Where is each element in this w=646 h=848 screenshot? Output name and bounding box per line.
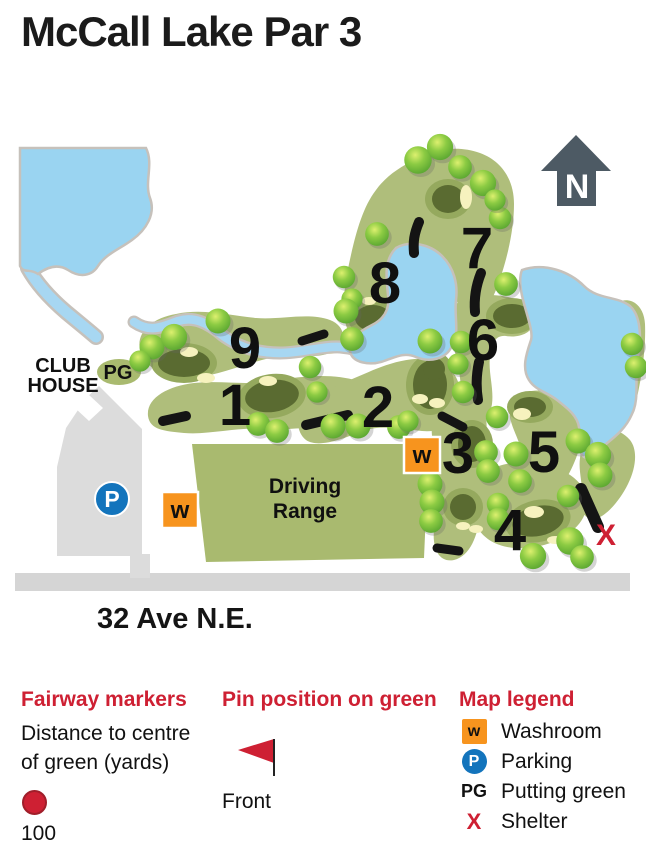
legend-fairway-markers: Fairway markers Distance to centre of gr…: [21, 688, 221, 848]
hole-number-8: 8: [369, 251, 401, 316]
hole-number-4: 4: [494, 498, 526, 563]
pin-flag-label: Front: [222, 787, 447, 816]
washroom-letter: w: [412, 442, 432, 469]
legend-item-label: Putting green: [501, 780, 626, 804]
putting-green-icon: PG: [461, 781, 487, 802]
legend-pin-title: Pin position on green: [222, 688, 447, 712]
hole-number-5: 5: [528, 420, 560, 485]
legend-item-shelter: X Shelter: [459, 809, 646, 834]
legend-map-legend: Map legend w Washroom P Parking PG Putti…: [459, 688, 646, 839]
legend-fairway-desc-line2: of green (yards): [21, 748, 221, 777]
pin-flag-icon: [228, 734, 447, 783]
legend-map-title: Map legend: [459, 688, 646, 712]
legend-pin-position: Pin position on green Front: [222, 688, 447, 816]
hole-number-3: 3: [442, 421, 474, 486]
north-arrow: N: [541, 135, 611, 206]
parking-marker: P: [95, 482, 129, 516]
hole-number-7: 7: [461, 216, 493, 281]
washroom-marker-left: w: [162, 492, 198, 528]
legend-item-label: Shelter: [501, 810, 568, 834]
driving-range-label-line1: Driving: [269, 475, 341, 498]
washroom-marker-right: w: [404, 437, 440, 473]
club-house-building: [57, 386, 150, 578]
hole-number-9: 9: [229, 316, 261, 381]
road-32-ave: [15, 573, 630, 591]
hole-number-1: 1: [219, 373, 251, 438]
legend-fairway-desc-line1: Distance to centre: [21, 719, 221, 748]
fairway-marker-value: 100: [21, 819, 221, 848]
club-house-label-line2: HOUSE: [27, 375, 98, 397]
putting-green-marker: PG: [104, 362, 133, 384]
legend-item-washroom: w Washroom: [459, 719, 646, 744]
washroom-icon: w: [462, 719, 487, 744]
parking-icon: P: [462, 749, 487, 774]
north-letter: N: [565, 168, 590, 206]
shelter-marker: X: [596, 519, 616, 552]
driving-range-label-line2: Range: [273, 500, 337, 523]
legend-item-label: Parking: [501, 750, 572, 774]
course-map: w w P X N CLUB HOUSE PG Driving Range 1 …: [0, 125, 646, 648]
page-title: McCall Lake Par 3: [21, 8, 361, 56]
legend-fairway-title: Fairway markers: [21, 688, 221, 712]
legend-item-putting-green: PG Putting green: [459, 779, 646, 804]
shelter-icon: X: [467, 809, 482, 835]
legend-item-parking: P Parking: [459, 749, 646, 774]
hole-number-2: 2: [362, 375, 394, 440]
hole-number-6: 6: [467, 308, 499, 373]
club-house-label-line1: CLUB: [35, 355, 91, 377]
road-label: 32 Ave N.E.: [97, 603, 253, 635]
washroom-letter: w: [170, 497, 190, 524]
parking-letter: P: [104, 486, 119, 512]
legend-item-label: Washroom: [501, 720, 602, 744]
fairway-marker-dot-icon: [22, 790, 47, 815]
golf-course-map-page: McCall Lake Par 3: [0, 0, 646, 848]
